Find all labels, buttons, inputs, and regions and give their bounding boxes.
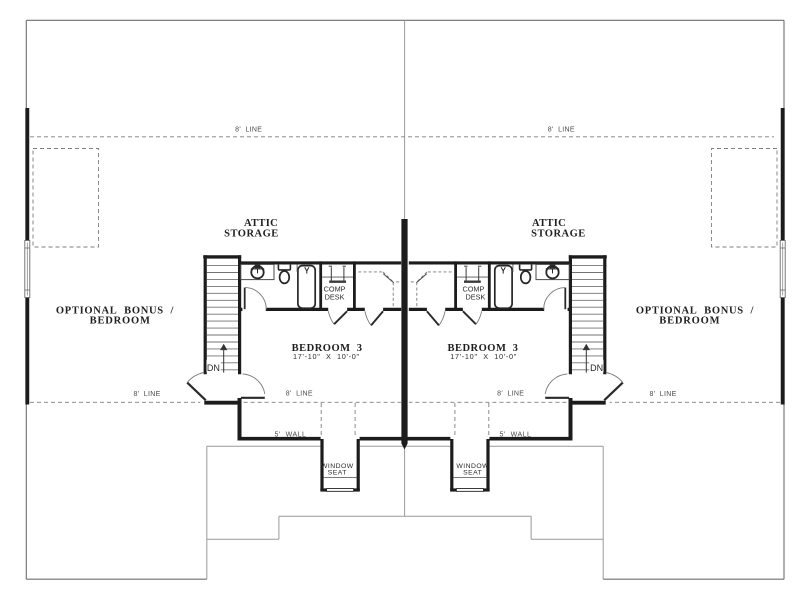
svg-text:8' LINE: 8' LINE [133, 391, 160, 398]
svg-text:BEDROOM: BEDROOM [90, 316, 151, 327]
svg-text:ATTIC: ATTIC [532, 218, 566, 229]
svg-text:SEAT: SEAT [463, 470, 482, 477]
svg-text:SEAT: SEAT [328, 470, 347, 477]
svg-text:8' LINE: 8' LINE [497, 391, 524, 398]
svg-text:DESK: DESK [465, 293, 485, 302]
svg-text:STORAGE: STORAGE [224, 229, 279, 240]
svg-text:5' WALL: 5' WALL [500, 431, 532, 438]
svg-text:DN: DN [590, 363, 603, 373]
svg-text:BEDROOM: BEDROOM [659, 316, 720, 327]
svg-text:DN: DN [207, 363, 220, 373]
svg-text:8' LINE: 8' LINE [548, 127, 575, 134]
svg-text:ATTIC: ATTIC [244, 218, 278, 229]
svg-text:8' LINE: 8' LINE [286, 391, 313, 398]
svg-text:17'-10" X 10'-0": 17'-10" X 10'-0" [293, 352, 360, 361]
svg-text:DESK: DESK [325, 293, 345, 302]
svg-text:8' LINE: 8' LINE [649, 391, 676, 398]
svg-text:17'-10" X 10'-0": 17'-10" X 10'-0" [450, 352, 517, 361]
svg-text:8' LINE: 8' LINE [235, 127, 262, 134]
svg-text:STORAGE: STORAGE [531, 229, 586, 240]
svg-text:5' WALL: 5' WALL [275, 431, 307, 438]
